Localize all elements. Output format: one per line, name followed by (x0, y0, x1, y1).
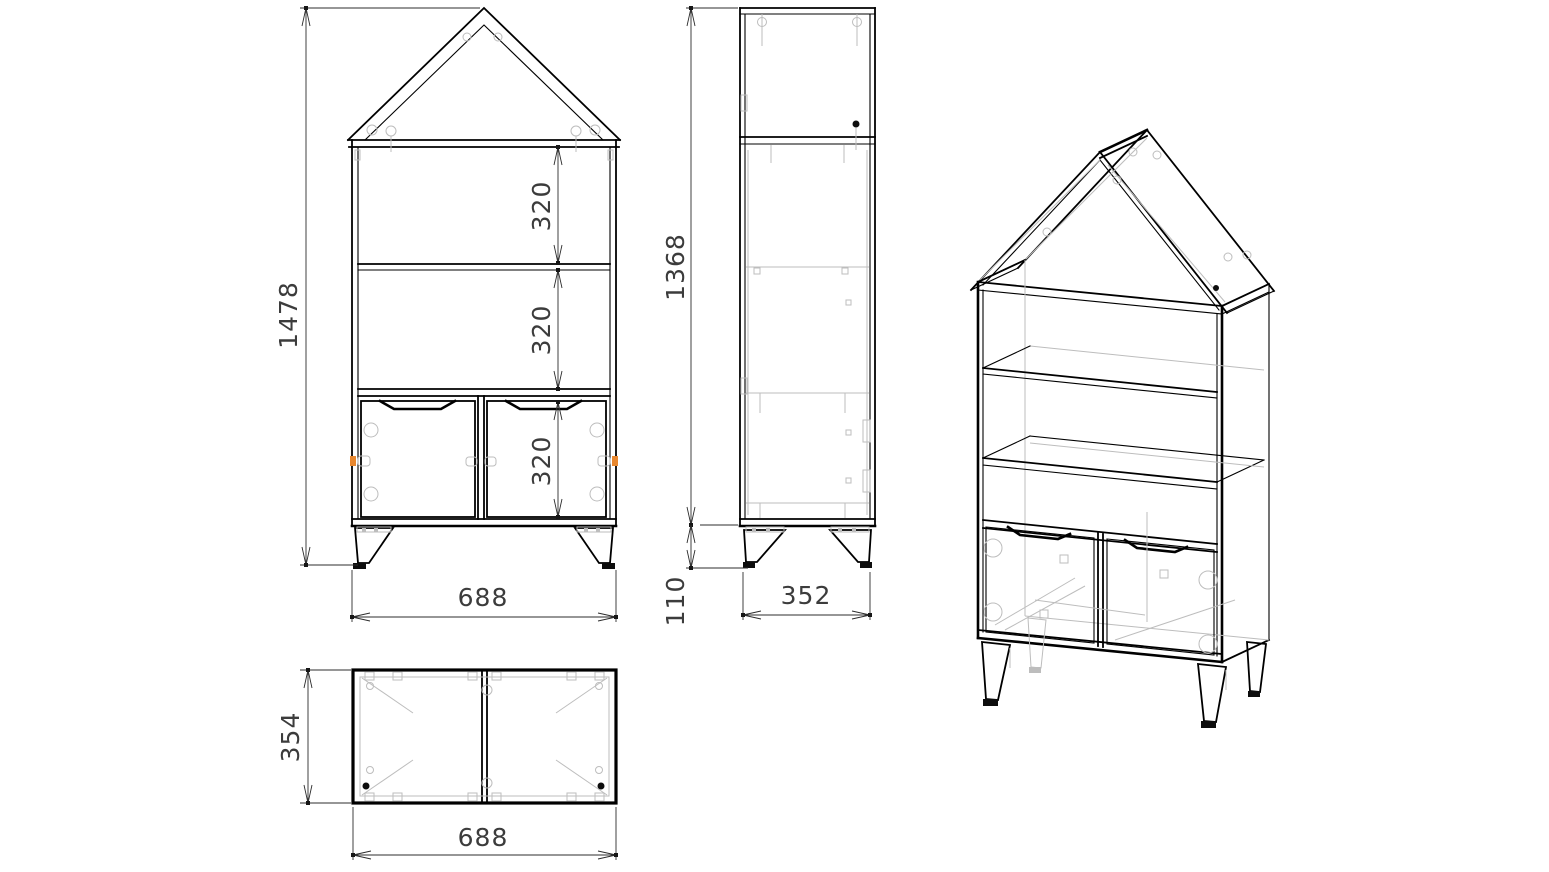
dim-label-top-width: 688 (458, 823, 509, 852)
top-hidden-details (360, 672, 609, 801)
dim-label-side-body-height: 1368 (661, 233, 690, 301)
top-view: 354 688 (276, 668, 618, 860)
front-roof (348, 8, 620, 152)
side-legs (743, 527, 872, 568)
side-view: 1368 110 352 (661, 6, 875, 626)
iso-carcass (978, 260, 1269, 662)
isometric-view (971, 130, 1274, 728)
right-door-handle (506, 401, 581, 409)
dim-label-section-middle: 320 (527, 305, 556, 356)
dim-side-depth: 352 (741, 572, 872, 620)
drawing-sheet: 1478 320 320 320 688 (0, 0, 1549, 872)
dim-label-top-depth: 354 (276, 712, 305, 763)
left-door-handle (380, 401, 455, 409)
dim-front-width: 688 (350, 570, 618, 622)
dim-label-section-top: 320 (527, 181, 556, 232)
dim-side-body-height: 1368 (661, 6, 738, 527)
technical-drawing: 1478 320 320 320 688 (0, 0, 1549, 872)
front-view: 1478 320 320 320 688 (274, 6, 620, 622)
front-legs (353, 527, 615, 569)
dim-front-sections: 320 320 320 (527, 145, 562, 519)
top-outline (353, 670, 616, 803)
front-carcass (352, 140, 616, 526)
side-hidden-details (741, 14, 870, 518)
dim-label-side-depth: 352 (781, 581, 832, 610)
fitting-marker (612, 456, 618, 466)
dim-side-leg-height: 110 (661, 525, 748, 626)
dim-label-side-leg-height: 110 (661, 576, 690, 627)
dim-label-front-total-height: 1478 (274, 281, 303, 349)
dim-label-front-width: 688 (458, 583, 509, 612)
dim-top-width: 688 (351, 807, 618, 860)
dim-front-total-height: 1478 (274, 6, 480, 567)
dim-label-section-bottom: 320 (527, 436, 556, 487)
dim-top-depth: 354 (276, 668, 351, 805)
fitting-marker (350, 456, 356, 466)
